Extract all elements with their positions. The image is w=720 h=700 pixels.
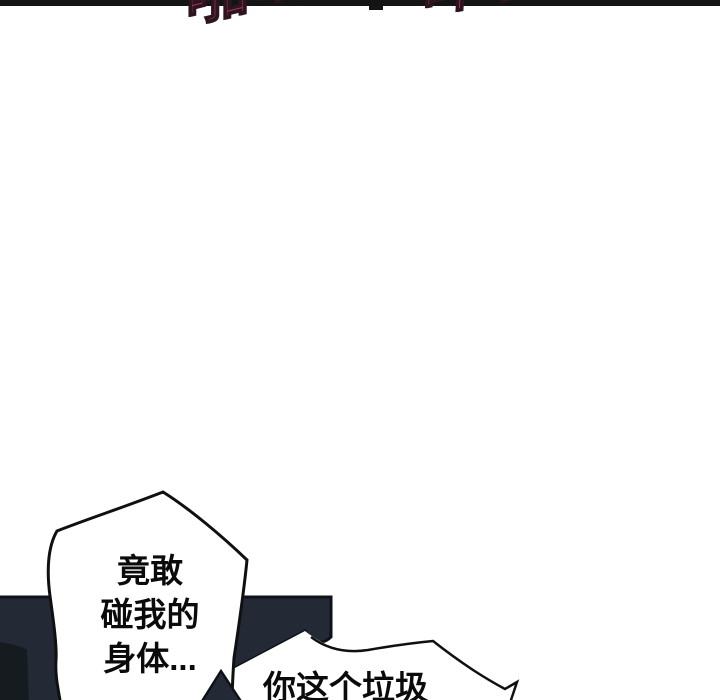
panel-shadow-shape [0,642,29,700]
comic-page: 啪哟 哗啦 竟敢 碰我的 身体... 你这个垃圾 [0,0,720,700]
bubble1-line-1: 竟敢 [88,549,212,593]
top-panel-divider [0,0,720,6]
sfx-lettering-left: 啪哟 [172,0,328,32]
top-panel-divider-nub [369,4,383,10]
bubble1-line-2: 碰我的 [88,593,212,637]
bubble2-dialogue: 你这个垃圾 [263,668,473,700]
sfx-lettering-right: 哗啦 [413,0,546,22]
bubble1-line-3: 身体... [88,637,212,681]
bubble1-dialogue: 竟敢 碰我的 身体... [88,549,212,681]
